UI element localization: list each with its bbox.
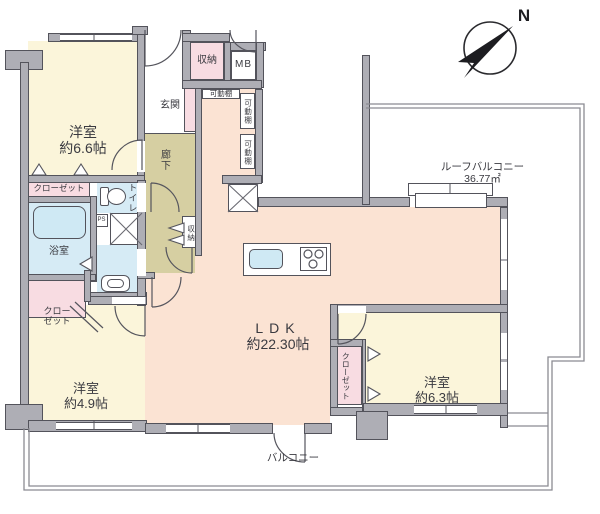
door-opening xyxy=(112,297,145,304)
shelf-label-2: 可動棚 xyxy=(243,95,252,128)
door-opening xyxy=(137,141,145,172)
duct-box-kitchen xyxy=(228,184,258,212)
wall xyxy=(362,339,366,407)
wall xyxy=(182,80,262,89)
wall xyxy=(90,196,97,282)
closet-top-label: クローゼット xyxy=(28,184,90,194)
toilet-label: トイレ xyxy=(127,183,137,212)
north-label: N xyxy=(512,6,536,26)
window xyxy=(500,261,508,290)
wall xyxy=(28,196,96,203)
hallway-label: 廊下 xyxy=(158,145,170,175)
vanity-basin xyxy=(107,279,124,288)
wall xyxy=(195,84,202,256)
window xyxy=(500,362,508,390)
wall xyxy=(222,175,262,184)
door-opening xyxy=(137,183,146,212)
kitchen-stove xyxy=(300,247,327,271)
toilet-bowl xyxy=(107,188,126,205)
closet-63-label: クローゼット xyxy=(341,349,350,403)
wall xyxy=(255,89,263,183)
wall xyxy=(132,26,148,35)
meter-box-label: MB xyxy=(231,59,256,71)
window xyxy=(500,219,508,259)
wall xyxy=(362,55,370,205)
north-compass-icon xyxy=(458,22,516,78)
shelf-label-1: 可動棚 xyxy=(202,90,240,99)
window xyxy=(166,424,230,433)
pipe-space-label: PS xyxy=(95,217,108,224)
entrance-label: 玄関 xyxy=(146,100,194,112)
window xyxy=(60,34,132,41)
bathroom-label: 浴室 xyxy=(28,246,90,258)
shelf-label-3: 可動棚 xyxy=(243,136,252,169)
bedroom-49-label: 洋室約4.9帖 xyxy=(26,352,146,442)
storage-hall-label: 収納 xyxy=(186,220,195,246)
floor-plan: N 洋室約6.6帖 洋室約4.9帖 洋室約6.3帖 LDK約22.30帖 玄関 … xyxy=(0,0,600,514)
window xyxy=(500,333,508,359)
wall xyxy=(258,197,410,207)
bedroom-63-label: 洋室約6.3帖 xyxy=(377,346,497,436)
bedroom-66-label: 洋室約6.6帖 xyxy=(28,92,138,189)
ldk-room xyxy=(145,405,330,425)
bathtub xyxy=(33,206,86,239)
closet-mid-label: クローゼット xyxy=(28,285,86,347)
storage-top-label: 収納 xyxy=(190,55,224,67)
balcony-label: バルコニー xyxy=(238,452,348,464)
wall xyxy=(304,423,332,434)
hallway-area xyxy=(145,133,195,273)
kitchen-sink xyxy=(249,249,283,269)
entrance-door-arc xyxy=(145,30,181,66)
door-opening xyxy=(137,249,146,276)
roof-balcony-label: ルーフバルコニー36.77㎡ xyxy=(400,137,565,209)
ldk-label: LDK約22.30帖 xyxy=(198,288,358,385)
wall xyxy=(182,33,230,42)
